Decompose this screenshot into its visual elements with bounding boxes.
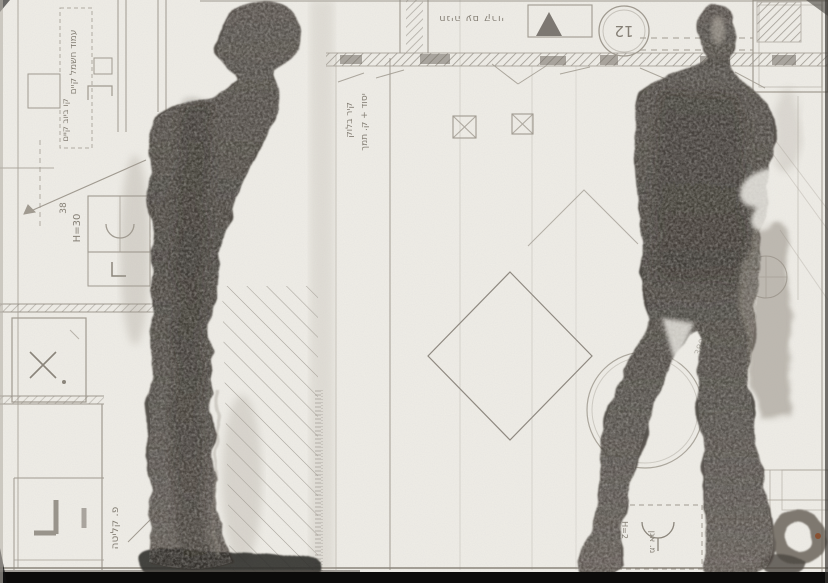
scan-border-bottom <box>0 572 828 583</box>
paper-grain-overlay <box>0 0 828 583</box>
artwork-canvas: חניה עם קרוי 12 קיר בלוק יסוד + ק. תמך ע… <box>0 0 828 583</box>
scanned-artwork: חניה עם קרוי 12 קיר בלוק יסוד + ק. תמך ע… <box>0 0 828 583</box>
scan-border-left <box>0 0 3 583</box>
